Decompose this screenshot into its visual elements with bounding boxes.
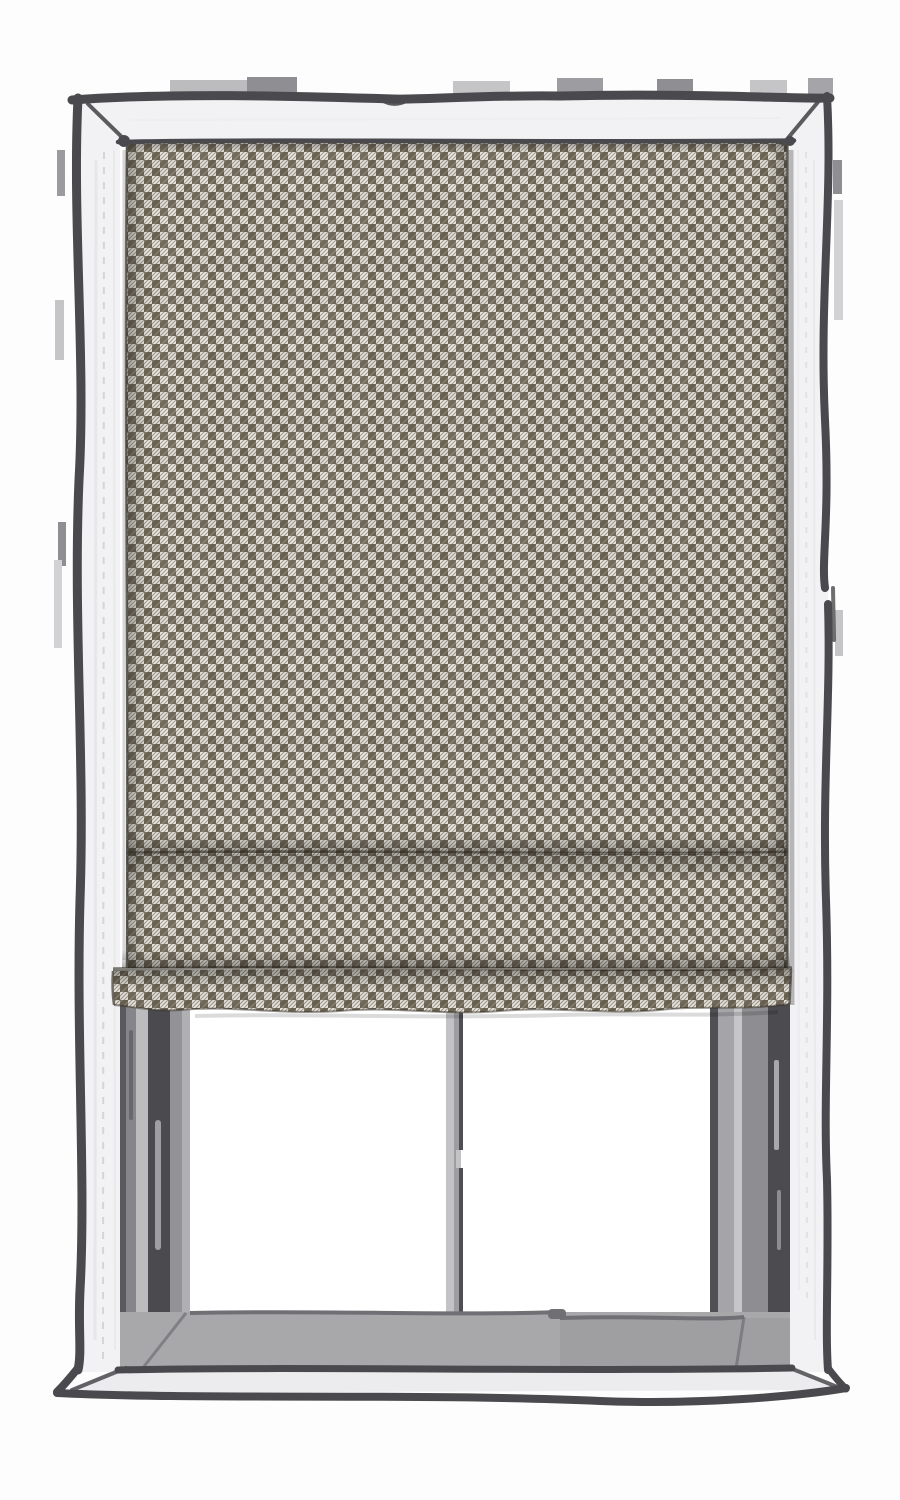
roman-blind [113, 140, 792, 1016]
sill [120, 1309, 790, 1370]
left-jamb [120, 1002, 190, 1314]
wall-mark [834, 200, 843, 320]
fold-crease-1 [126, 836, 788, 880]
fold-crease-2 [113, 950, 792, 990]
outline-right [825, 604, 829, 1370]
sill-shading [560, 1318, 790, 1370]
fold-shadow-below [113, 970, 792, 990]
jamb-highlight [155, 1120, 161, 1250]
window-pane-left [190, 1002, 446, 1312]
wall-mark [833, 160, 842, 194]
fold-crease-line [126, 852, 788, 854]
jamb-streak [710, 1002, 718, 1314]
fold-shadow-above [126, 836, 788, 853]
wall-mark [54, 560, 62, 648]
outline-sill-bottom [118, 1368, 792, 1370]
blind-edge-left [126, 141, 127, 967]
jamb-highlight [774, 1060, 779, 1150]
frame-streak [114, 150, 115, 1350]
wall-mark [55, 300, 64, 360]
jamb-streak [734, 1002, 742, 1314]
corner-dab [785, 136, 795, 146]
wall-mark [58, 522, 66, 566]
hem-edge-left [113, 971, 114, 1005]
mullion-edge [459, 1008, 463, 1150]
jamb-highlight [129, 1030, 133, 1120]
jamb-streak [718, 1002, 734, 1314]
mullion-edge [459, 1168, 463, 1314]
jamb-streak [768, 1002, 790, 1314]
frame-streak [814, 160, 815, 1340]
sill-top-edge [190, 1312, 560, 1313]
corner-dab [118, 135, 130, 147]
blind-gap-shadow-right [791, 150, 792, 1005]
blind-gap-shadow-left [123, 150, 124, 960]
jamb-highlight [777, 1190, 781, 1250]
stitch-line-left [103, 152, 104, 1360]
frame-streak [798, 150, 799, 1290]
outline-right-sliver [833, 588, 834, 640]
frame-streak [95, 160, 96, 1340]
jamb-streak [120, 1002, 126, 1314]
jamb-streak [170, 1002, 182, 1314]
wall-mark [57, 150, 65, 196]
outline-inner-top [118, 141, 794, 143]
wall-mark [835, 610, 843, 656]
jamb-streak [742, 1002, 768, 1314]
mullion-highlight [456, 1150, 461, 1168]
wall-mark [808, 78, 833, 94]
fold-shadow-below [126, 854, 788, 880]
wall-mark [750, 80, 787, 94]
fold-crease-line [113, 968, 792, 970]
sill-top-dab [548, 1309, 566, 1319]
window-pane-right [463, 1002, 710, 1312]
window-blind-illustration [0, 0, 900, 1500]
jamb-streak [136, 1002, 148, 1314]
outline-top [72, 95, 830, 100]
jamb-streak [182, 1002, 190, 1314]
blind-edge-right [787, 141, 788, 967]
hem-edge-right [790, 969, 792, 1004]
sill-top-edge [560, 1317, 744, 1318]
illustration-canvas [0, 0, 900, 1500]
right-jamb [710, 1002, 790, 1314]
mullion [446, 1008, 463, 1314]
fold-shadow-above [122, 950, 790, 968]
